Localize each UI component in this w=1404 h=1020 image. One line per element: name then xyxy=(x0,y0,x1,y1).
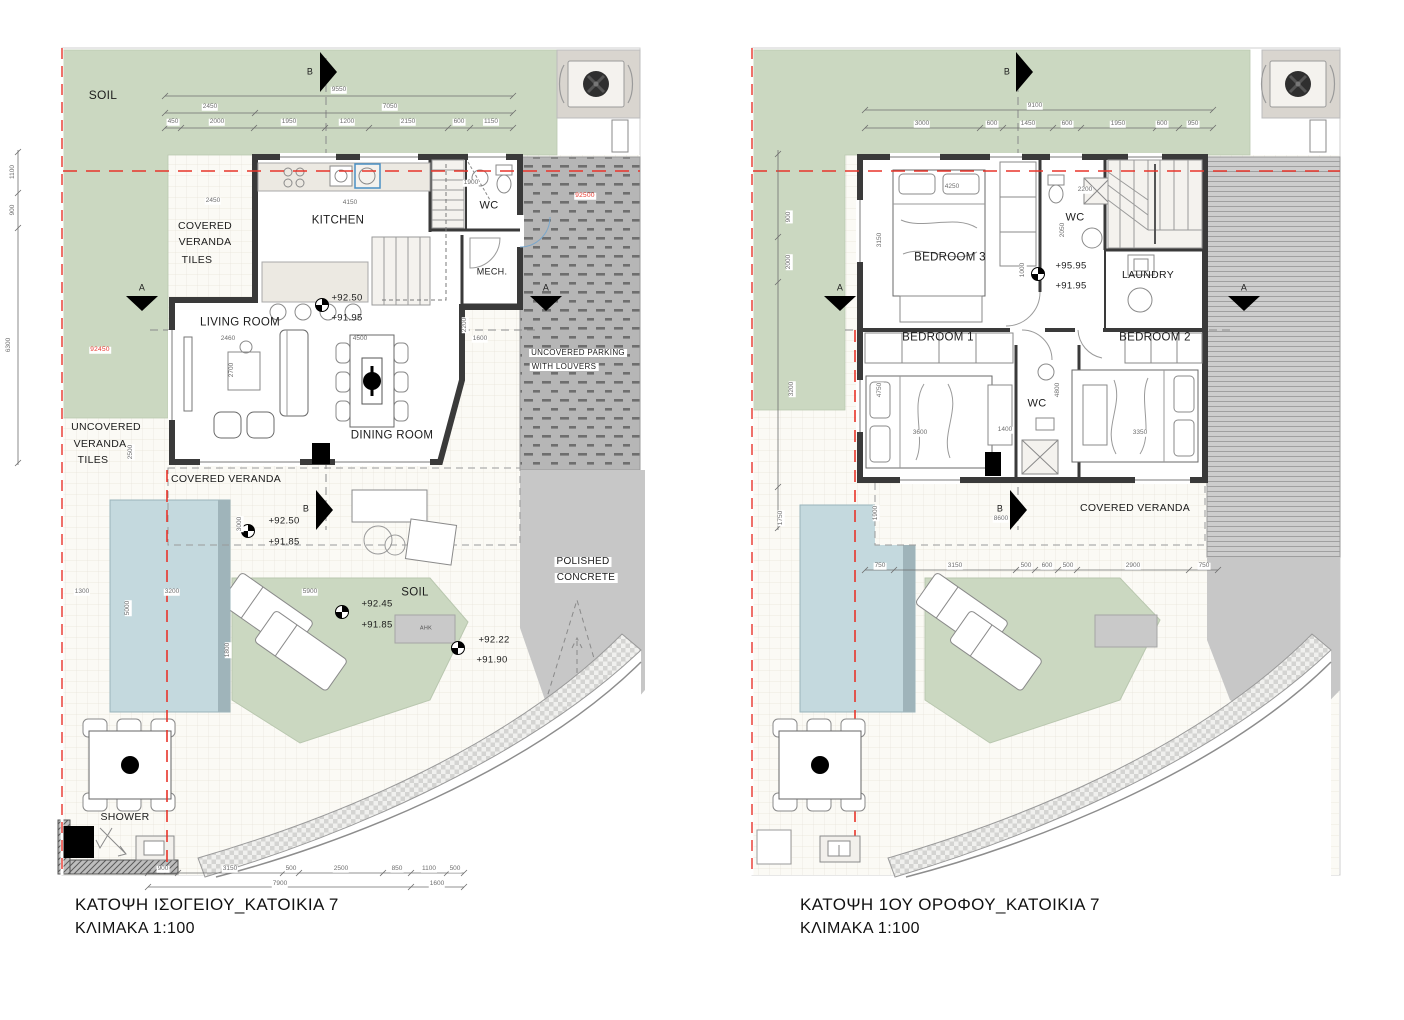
dim-text: 1100 xyxy=(10,164,17,180)
dim-text: 4250 xyxy=(944,184,960,191)
dim-text: 3000 xyxy=(237,516,244,532)
dim-text: 950 xyxy=(1187,121,1200,128)
section-letter: B xyxy=(997,505,1003,514)
dim-text: 500 xyxy=(1020,563,1033,570)
dim-text: 1600 xyxy=(429,881,445,888)
elevation-value: +91.85 xyxy=(268,537,299,547)
dim-text: 1950 xyxy=(281,119,297,126)
dim-text: 500 xyxy=(285,866,298,873)
dim-text: 750 xyxy=(1198,563,1211,570)
drawing-sheet: SOILCOVEREDVERANDATILESKITCHENWCMECH.LIV… xyxy=(0,0,1404,1020)
dim-text: 1900 xyxy=(873,505,880,521)
dim-text: 5900 xyxy=(302,589,318,596)
soil-label: SOIL xyxy=(89,89,118,101)
dim-text: 750 xyxy=(874,563,887,570)
dim-text: 450 xyxy=(167,119,180,126)
elevation-value: +91.95 xyxy=(1053,281,1088,291)
uncovered-veranda-label: VERANDA xyxy=(74,439,127,450)
dim-text: 2200 xyxy=(462,317,469,333)
dim-text: 850 xyxy=(391,866,404,873)
elevation-value: +92.50 xyxy=(331,293,362,303)
dim-text: 2450 xyxy=(202,104,218,111)
dim-text: 2700 xyxy=(229,362,236,378)
wc-label: WC xyxy=(480,201,499,212)
dim-text: 5000 xyxy=(125,600,132,616)
laundry-label: LAUNDRY xyxy=(1122,270,1174,281)
soil-patch-label: SOIL xyxy=(401,587,428,599)
elevation-value: +91.85 xyxy=(361,620,392,630)
section-letter: A xyxy=(837,284,843,293)
elevation-value: +92.45 xyxy=(361,599,392,609)
dim-text: 3150 xyxy=(947,563,963,570)
dim-text: 600 xyxy=(453,119,466,126)
parking-label: UNCOVERED PARKING xyxy=(529,349,627,357)
uncovered-veranda-label: UNCOVERED xyxy=(71,422,141,433)
dim-text: 7050 xyxy=(382,104,398,111)
dim-text: 2000 xyxy=(786,254,793,270)
dim-text: 2050 xyxy=(1060,222,1067,238)
dim-text: 600 xyxy=(1041,563,1054,570)
dim-text: 4500 xyxy=(352,336,368,343)
dim-text: 2460 xyxy=(220,336,236,343)
wc-label: WC xyxy=(1066,213,1085,224)
dim-text: 3600 xyxy=(912,430,928,437)
dim-text: 6300 xyxy=(6,337,13,353)
dim-text: 4750 xyxy=(877,382,884,398)
parking-label: WITH LOUVERS xyxy=(530,363,599,371)
uncovered-veranda-label: TILES xyxy=(78,455,109,466)
elevation-value: +92.22 xyxy=(478,635,509,645)
dim-text: 9550 xyxy=(331,87,347,94)
section-letter: B xyxy=(307,68,313,77)
dim-text: 3350 xyxy=(1132,430,1148,437)
dim-text: 900 xyxy=(786,211,793,224)
dim-text: 7900 xyxy=(272,881,288,888)
dim-text: 8600 xyxy=(993,516,1009,523)
covered-veranda-label: COVERED VERANDA xyxy=(1080,503,1190,514)
dim-text: 1150 xyxy=(483,119,499,126)
kitchen-label: KITCHEN xyxy=(312,215,365,227)
dim-text: 4800 xyxy=(1055,382,1062,398)
dim-text: 600 xyxy=(1156,121,1169,128)
bedroom3-label: BEDROOM 3 xyxy=(914,252,986,264)
section-letter: B xyxy=(303,505,309,514)
dim-text: 3000 xyxy=(914,121,930,128)
polished-concrete-label: POLISHED xyxy=(555,557,612,567)
polished-concrete-label: CONCRETE xyxy=(555,573,618,583)
dim-text: 600 xyxy=(986,121,999,128)
dim-text: 3150 xyxy=(222,866,238,873)
dim-text: 1450 xyxy=(1020,121,1036,128)
survey-ref: 92500 xyxy=(574,193,596,200)
dim-text: 900 xyxy=(10,204,17,217)
dim-text: 3200 xyxy=(164,589,180,596)
dim-text: 2150 xyxy=(400,119,416,126)
section-letter: A xyxy=(543,284,549,293)
section-letter: A xyxy=(1241,284,1247,293)
bedroom1-label: BEDROOM 1 xyxy=(902,332,974,344)
dim-text: 500 xyxy=(449,866,462,873)
labels-layer: SOILCOVEREDVERANDATILESKITCHENWCMECH.LIV… xyxy=(0,0,1404,1020)
dim-text: 900 xyxy=(157,866,170,873)
dim-text: 1000 xyxy=(1020,262,1027,278)
dim-text: 3200 xyxy=(789,381,796,397)
dim-text: 4150 xyxy=(342,200,358,207)
section-letter: A xyxy=(139,284,145,293)
dim-text: 1750 xyxy=(778,510,785,526)
covered-veranda-upper-label: TILES xyxy=(182,255,213,266)
dim-text: 500 xyxy=(1062,563,1075,570)
dim-text: 2000 xyxy=(209,119,225,126)
dim-text: 1100 xyxy=(421,866,437,873)
elevation-value: +91.95 xyxy=(331,313,362,323)
ground-floor-scale: ΚΛΙΜΑΚΑ 1:100 xyxy=(75,920,195,938)
survey-ref: 92450 xyxy=(89,347,111,354)
dim-text: 1800 xyxy=(225,642,232,658)
dim-text: 2200 xyxy=(1077,187,1093,194)
dim-text: 2500 xyxy=(128,444,135,460)
dim-text: 2900 xyxy=(1125,563,1141,570)
ground-floor-title: ΚΑΤΟΨΗ ΙΣΟΓΕΙΟΥ_ΚΑΤΟΙΚΙΑ 7 xyxy=(75,895,339,915)
ahk-label: AHK xyxy=(420,626,432,632)
first-floor-scale: ΚΛΙΜΑΚΑ 1:100 xyxy=(800,920,920,938)
elevation-value: +92.50 xyxy=(268,516,299,526)
dim-text: 1600 xyxy=(472,336,488,343)
living-room-label: LIVING ROOM xyxy=(200,317,280,329)
covered-veranda-lower-label: COVERED VERANDA xyxy=(171,474,281,485)
dim-text: 3150 xyxy=(877,232,884,248)
dining-room-label: DINING ROOM xyxy=(351,430,434,442)
first-floor-title: ΚΑΤΟΨΗ 1ΟΥ ΟΡΟΦΟΥ_ΚΑΤΟΙΚΙΑ 7 xyxy=(800,895,1100,915)
dim-text: 2500 xyxy=(333,866,349,873)
bedroom2-label: BEDROOM 2 xyxy=(1119,332,1191,344)
dim-text: 1900 xyxy=(463,180,479,187)
dim-text: 600 xyxy=(1061,121,1074,128)
elevation-value: +95.95 xyxy=(1053,261,1088,271)
dim-text: 2450 xyxy=(205,198,221,205)
dim-text: 1400 xyxy=(997,427,1013,434)
elevation-value: +91.90 xyxy=(476,655,507,665)
dim-text: 1200 xyxy=(339,119,355,126)
dim-text: 1950 xyxy=(1110,121,1126,128)
section-letter: B xyxy=(1004,68,1010,77)
mech-label: MECH. xyxy=(477,268,508,277)
shower-label: SHOWER xyxy=(100,812,149,823)
dim-text: 1300 xyxy=(74,589,90,596)
wc-label: WC xyxy=(1028,399,1047,410)
covered-veranda-upper-label: COVERED xyxy=(178,221,232,232)
dim-text: 9100 xyxy=(1027,103,1043,110)
covered-veranda-upper-label: VERANDA xyxy=(179,237,232,248)
